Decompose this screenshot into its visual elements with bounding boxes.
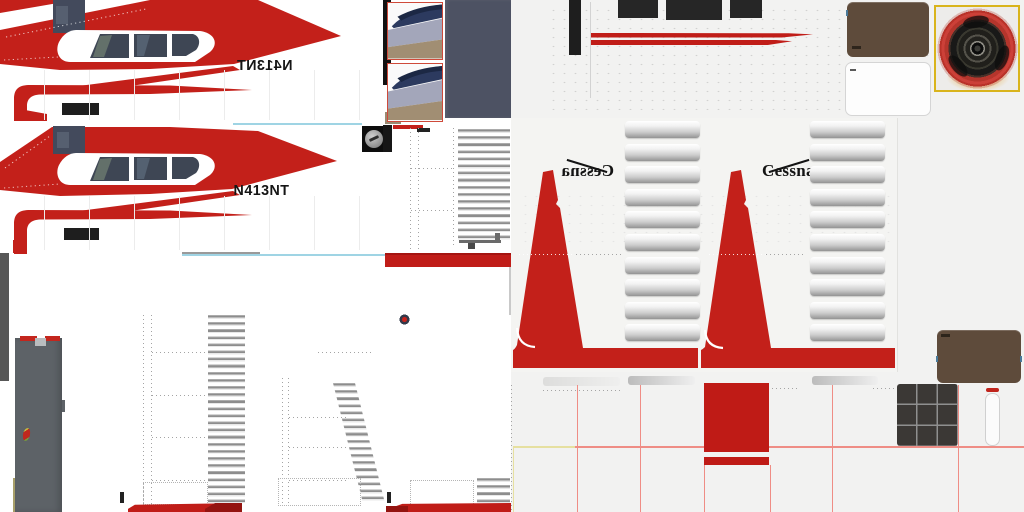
- rib-dotted-box: [410, 480, 474, 506]
- cessna-logo: Cessna: [756, 156, 818, 182]
- panel-seam-lines: [0, 196, 385, 250]
- windshield-photo-tile: [387, 2, 443, 60]
- cessna-logo-text: Cessna: [561, 162, 614, 180]
- strut-edge-tan: [13, 478, 15, 512]
- gear-leg-capsule: [985, 393, 1000, 446]
- uv-seam-red: [575, 446, 1024, 448]
- windshield-photo-art: [388, 64, 442, 121]
- black-panel-part: [618, 0, 658, 18]
- wing-strut: [15, 338, 62, 512]
- louver-slat: [625, 279, 700, 296]
- louver-slat: [810, 234, 885, 251]
- wing-tip-red-band-dark: [386, 506, 408, 512]
- door-handle-mark: [941, 334, 950, 337]
- black-dash-part: [120, 492, 124, 503]
- red-trim-mark: [13, 240, 19, 253]
- fin-rivet-dotted: [519, 254, 575, 255]
- rib-dotted-tick: [318, 352, 372, 353]
- photo-reference-highlight: [57, 132, 69, 148]
- windshield-photo-tile: [387, 63, 443, 122]
- rib-dotted-box: [278, 478, 361, 506]
- fuselage-cheat-stripe: [591, 40, 792, 45]
- louver-slat: [810, 121, 885, 138]
- uv-seam-cyan: [182, 254, 388, 256]
- fin-rivet-dotted: [576, 254, 622, 255]
- rib-dotted-line: [418, 128, 419, 252]
- strut-red-cap: [45, 336, 60, 341]
- louver-stack-right: [810, 121, 885, 347]
- rib-dotted-tick: [152, 352, 207, 353]
- louver-slat: [625, 189, 700, 206]
- louver-slat: [810, 211, 885, 228]
- rib-dotted-tick: [152, 437, 207, 438]
- prop-blade-shadow: [945, 52, 971, 80]
- gear-leg-red-cap: [986, 388, 999, 392]
- louver-slat: [810, 324, 885, 341]
- black-bar-part: [569, 0, 581, 55]
- door-panel-white: [845, 62, 931, 116]
- louver-stack-left: [625, 121, 700, 347]
- uv-seam-red: [640, 385, 641, 512]
- rib-dotted-tick: [152, 480, 207, 481]
- rib-dotted-tick: [289, 447, 347, 448]
- black-dash-part: [387, 492, 391, 503]
- louver-slat: [625, 166, 700, 183]
- rib-dotted-tick: [411, 168, 455, 169]
- louver-slat: [625, 121, 700, 138]
- fuselage-cheat-stripe: [591, 33, 813, 38]
- door-panel-brown-lower: [937, 330, 1021, 383]
- hinge-mark: [936, 356, 938, 362]
- uv-seam-yellow: [513, 447, 514, 512]
- interior-slate-panel: [445, 0, 511, 118]
- strut-gray-tab: [35, 338, 46, 346]
- hinge-mark: [1020, 356, 1022, 362]
- rib-dotted-line: [143, 315, 144, 505]
- rib-dotted-line: [151, 315, 152, 505]
- panel-edge-line: [590, 2, 591, 98]
- uv-seam-cyan: [233, 123, 362, 125]
- engine-cowl-circle: [937, 8, 1018, 89]
- rib-dotted-box: [143, 482, 208, 505]
- flap-track-bar: [628, 376, 695, 385]
- rib-dotted-tick: [411, 210, 455, 211]
- flap-track-bar: [812, 376, 878, 385]
- wing-rib-ladder: [477, 478, 510, 504]
- prop-blade-shadow: [962, 14, 990, 30]
- wing-rib-ladder: [208, 315, 245, 503]
- door-handle-mark: [850, 69, 856, 71]
- hinge-mark: [846, 10, 848, 16]
- rib-dotted-tick: [152, 395, 207, 396]
- livery-texture-atlas: N413NT N413NT: [0, 0, 1024, 512]
- photo-reference-highlight: [56, 6, 68, 24]
- fin-rivet-dotted: [709, 254, 766, 255]
- rib-dark-clip: [468, 243, 475, 249]
- dark-gray-strip: [0, 253, 9, 381]
- flap-track-bar: [543, 377, 620, 386]
- rib-dotted-line: [453, 128, 454, 246]
- cessna-logo-mirrored: Cessna: [560, 156, 620, 182]
- louver-slat: [625, 302, 700, 319]
- strut-decal: [22, 427, 32, 441]
- louver-slat: [810, 144, 885, 161]
- rudder-red-patch: [704, 383, 769, 452]
- rib-bracket-end: [495, 233, 500, 243]
- black-panel-part: [666, 0, 722, 20]
- engine-front-tile: [934, 5, 1020, 92]
- louver-slat: [810, 257, 885, 274]
- uv-dotted-row: [873, 388, 895, 389]
- louver-slat: [810, 189, 885, 206]
- fin-rivet-dotted: [766, 254, 803, 255]
- uv-seam-red: [577, 385, 578, 512]
- rib-dotted-line: [410, 128, 411, 252]
- louver-slat: [625, 211, 700, 228]
- louver-slat: [810, 302, 885, 319]
- prop-blade-shadow: [992, 44, 1012, 73]
- door-handle-mark: [852, 46, 861, 49]
- nose-red-sliver: [0, 0, 58, 13]
- uv-seam-red: [958, 385, 959, 512]
- louver-slat: [625, 144, 700, 161]
- strut-notch: [62, 400, 65, 412]
- black-strip-part: [383, 125, 392, 152]
- uv-seam-red: [770, 465, 771, 512]
- cessna-logo-text: Cessna: [762, 162, 815, 180]
- uv-dotted-column: [511, 385, 512, 512]
- rudder-red-strip: [704, 457, 769, 465]
- rib-dotted-tick: [289, 417, 347, 418]
- door-panel-brown: [847, 2, 929, 57]
- black-panel-part: [730, 0, 762, 18]
- window-grid-panel: [897, 384, 958, 446]
- wing-rib-ladder: [458, 129, 510, 241]
- windshield-photo-art: [388, 3, 442, 59]
- louver-slat: [625, 257, 700, 274]
- uv-seam-yellow: [513, 446, 575, 448]
- wing-leading-edge-red-band: [385, 253, 511, 267]
- uv-seam-red: [832, 385, 833, 512]
- uv-seam-red: [704, 465, 705, 512]
- panel-seam-lines: [0, 70, 385, 120]
- louver-slat: [810, 166, 885, 183]
- louver-slat: [625, 324, 700, 341]
- louver-slat: [810, 279, 885, 296]
- roundel-decal: [399, 314, 410, 325]
- uv-dotted-row: [543, 390, 620, 391]
- louver-slat: [625, 234, 700, 251]
